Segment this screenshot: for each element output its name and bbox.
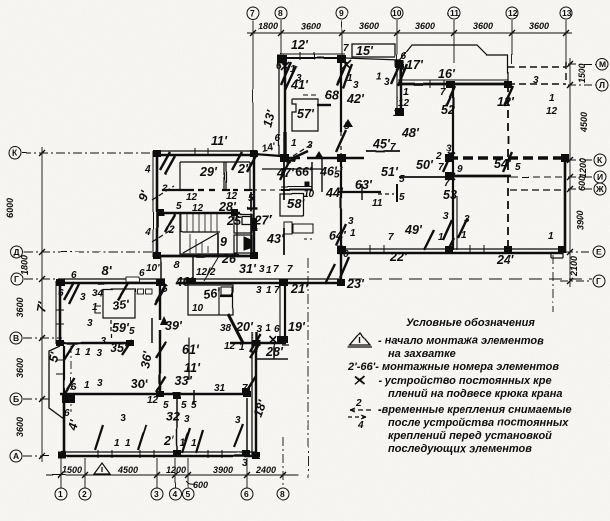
- svg-text:Л: Л: [599, 80, 605, 90]
- svg-text:Условные обозначения: Условные обозначения: [406, 317, 535, 329]
- svg-text:Г: Г: [14, 274, 19, 284]
- svg-text:6: 6: [58, 288, 64, 299]
- svg-text:39': 39': [165, 319, 183, 333]
- svg-text:1500: 1500: [577, 63, 587, 83]
- svg-text:2'-66'- монтажные номера элеме: 2'-66'- монтажные номера элементов: [347, 361, 559, 373]
- svg-text:3: 3: [80, 292, 86, 303]
- svg-text:1800: 1800: [258, 21, 278, 31]
- svg-text:6: 6: [401, 51, 407, 62]
- svg-text:11': 11': [184, 361, 201, 375]
- svg-text:12: 12: [224, 341, 236, 352]
- svg-text:3: 3: [384, 77, 390, 88]
- svg-text:9: 9: [220, 235, 227, 249]
- svg-text:7: 7: [274, 285, 280, 296]
- svg-text:7: 7: [287, 264, 293, 275]
- svg-text:6: 6: [244, 489, 249, 499]
- svg-text:5: 5: [129, 326, 135, 337]
- svg-text:1500: 1500: [62, 465, 82, 475]
- svg-text:1: 1: [438, 232, 444, 243]
- svg-text:5: 5: [344, 121, 350, 132]
- svg-text:43': 43': [266, 232, 285, 246]
- svg-text:49': 49': [404, 223, 423, 237]
- svg-text:3: 3: [154, 489, 159, 499]
- svg-text:3: 3: [184, 414, 190, 425]
- svg-text:12: 12: [546, 106, 558, 117]
- svg-text:61': 61': [182, 343, 200, 357]
- svg-text:44': 44': [325, 186, 344, 200]
- svg-text:1: 1: [92, 302, 98, 313]
- svg-text:плений на подвесе крюка крана: плений на подвесе крюка крана: [388, 388, 563, 400]
- svg-text:2: 2: [161, 183, 168, 194]
- svg-text:54': 54': [494, 157, 512, 171]
- svg-text:59': 59': [112, 321, 130, 335]
- svg-text:4500: 4500: [117, 465, 138, 475]
- svg-text:48': 48': [401, 126, 420, 140]
- svg-text:6: 6: [275, 133, 281, 144]
- svg-text:К: К: [597, 155, 603, 165]
- svg-text:8: 8: [174, 260, 180, 271]
- svg-text:12: 12: [398, 98, 410, 109]
- svg-text:3600: 3600: [15, 417, 25, 437]
- svg-text:2': 2': [237, 162, 249, 176]
- svg-text:7: 7: [440, 87, 446, 98]
- svg-text:3: 3: [256, 285, 262, 296]
- svg-text:3: 3: [307, 140, 313, 151]
- svg-text:21': 21': [290, 282, 309, 296]
- svg-text:63': 63': [355, 178, 373, 192]
- svg-text:45': 45': [372, 137, 391, 151]
- svg-text:1: 1: [84, 380, 90, 391]
- svg-text:3600: 3600: [15, 298, 25, 318]
- svg-text:1: 1: [191, 438, 197, 449]
- svg-text:3: 3: [446, 143, 452, 154]
- svg-text:22': 22': [389, 250, 408, 264]
- svg-text:3: 3: [87, 318, 93, 329]
- svg-text:9: 9: [457, 164, 463, 175]
- svg-text:5: 5: [185, 489, 190, 499]
- svg-text:1: 1: [461, 230, 467, 241]
- svg-text:10: 10: [192, 303, 204, 314]
- svg-text:17': 17': [406, 58, 424, 72]
- svg-text:24': 24': [496, 253, 515, 267]
- svg-text:12: 12: [393, 108, 405, 119]
- svg-text:12': 12': [291, 38, 309, 52]
- svg-text:15': 15': [356, 44, 374, 58]
- svg-text:3: 3: [256, 324, 262, 335]
- svg-text:12: 12: [192, 203, 204, 214]
- svg-text:7: 7: [273, 264, 279, 275]
- svg-text:1: 1: [376, 72, 382, 83]
- svg-text:5: 5: [334, 170, 340, 181]
- svg-text:26': 26': [221, 252, 240, 266]
- svg-text:5: 5: [399, 192, 405, 203]
- svg-text:8: 8: [278, 8, 283, 18]
- svg-text:68': 68': [325, 88, 343, 102]
- svg-text:1: 1: [403, 87, 409, 98]
- svg-text:50': 50': [416, 158, 434, 172]
- svg-text:5: 5: [515, 162, 521, 173]
- svg-text:К: К: [12, 148, 18, 158]
- svg-text:1: 1: [75, 347, 81, 358]
- svg-text:5: 5: [286, 156, 292, 167]
- svg-text:31: 31: [214, 383, 226, 394]
- svg-text:35': 35': [110, 341, 128, 355]
- svg-text:1: 1: [548, 231, 554, 242]
- svg-text:11': 11': [211, 134, 228, 148]
- svg-text:3: 3: [120, 413, 126, 424]
- svg-text:Г: Г: [596, 276, 601, 286]
- svg-text:11: 11: [372, 198, 383, 209]
- svg-text:- начало монтажа элементов: - начало монтажа элементов: [378, 335, 544, 347]
- svg-text:1: 1: [114, 438, 120, 449]
- svg-text:3: 3: [96, 348, 102, 359]
- svg-text:2400: 2400: [255, 465, 276, 475]
- svg-text:2: 2: [82, 489, 87, 499]
- svg-text:40': 40': [175, 275, 194, 289]
- svg-text:3900: 3900: [213, 465, 233, 475]
- svg-text:12/2: 12/2: [196, 267, 216, 278]
- svg-text:1: 1: [266, 265, 272, 276]
- svg-text:10: 10: [392, 8, 402, 18]
- svg-text:57': 57': [297, 107, 315, 121]
- svg-text:1: 1: [549, 93, 555, 104]
- svg-text:последующих элементов: последующих элементов: [388, 443, 532, 455]
- svg-text:23': 23': [346, 277, 365, 291]
- svg-text:3600: 3600: [529, 21, 549, 31]
- svg-text:7: 7: [242, 383, 248, 394]
- svg-text:4: 4: [144, 164, 151, 175]
- svg-text:3: 3: [533, 75, 539, 86]
- svg-text:29': 29': [199, 165, 218, 179]
- svg-text:20': 20': [235, 320, 254, 334]
- svg-text:600: 600: [577, 176, 587, 191]
- svg-text:3600: 3600: [473, 21, 493, 31]
- svg-text:42': 42': [346, 92, 365, 106]
- svg-text:1: 1: [239, 342, 245, 353]
- svg-text:1: 1: [265, 323, 271, 334]
- svg-text:6000: 6000: [5, 198, 15, 218]
- svg-text:52: 52: [441, 103, 455, 117]
- svg-text:3: 3: [235, 415, 241, 426]
- svg-text:7: 7: [438, 162, 444, 173]
- svg-text:10': 10': [146, 263, 160, 274]
- svg-text:3: 3: [464, 214, 470, 225]
- svg-text:4: 4: [144, 227, 151, 238]
- svg-text:1: 1: [180, 438, 186, 449]
- svg-text:12: 12: [147, 395, 159, 406]
- svg-text:1: 1: [350, 228, 356, 239]
- svg-text:5: 5: [176, 201, 182, 212]
- svg-text:3: 3: [443, 211, 449, 222]
- svg-text:6: 6: [64, 408, 70, 419]
- svg-text:66': 66': [295, 165, 313, 179]
- svg-text:19': 19': [288, 320, 306, 334]
- svg-text:1200: 1200: [166, 465, 186, 475]
- svg-text:2': 2': [163, 434, 175, 448]
- svg-text:12': 12': [497, 95, 515, 109]
- svg-text:2: 2: [355, 398, 362, 409]
- svg-text:51': 51': [381, 165, 399, 179]
- svg-text:35': 35': [111, 297, 131, 313]
- svg-text:38: 38: [220, 323, 232, 334]
- svg-text:12: 12: [508, 8, 518, 18]
- svg-text:3: 3: [296, 73, 302, 84]
- svg-text:56': 56': [202, 286, 222, 302]
- svg-text:1: 1: [85, 347, 91, 358]
- svg-text:креплений перед установкой: креплений перед установкой: [388, 430, 552, 442]
- svg-text:28': 28': [218, 200, 237, 214]
- svg-text:13: 13: [562, 8, 572, 18]
- svg-text:3: 3: [97, 378, 103, 389]
- svg-text:4500: 4500: [579, 112, 589, 133]
- svg-text:3: 3: [242, 458, 248, 469]
- svg-text:3900: 3900: [575, 210, 585, 230]
- svg-text:2: 2: [168, 225, 175, 236]
- svg-text:3: 3: [100, 336, 106, 347]
- svg-text:64': 64': [329, 229, 347, 243]
- svg-text:5: 5: [162, 284, 168, 295]
- svg-text:6: 6: [71, 270, 77, 281]
- svg-text:3600: 3600: [301, 21, 321, 31]
- svg-text:-временные крепления снимаемые: -временные крепления снимаемые: [378, 404, 572, 416]
- svg-text:27': 27': [254, 213, 273, 227]
- svg-text:4: 4: [357, 420, 364, 431]
- svg-text:1: 1: [58, 489, 63, 499]
- svg-text:5: 5: [248, 193, 254, 204]
- svg-text:В: В: [13, 333, 19, 343]
- svg-text:1: 1: [266, 285, 272, 296]
- svg-text:1: 1: [291, 138, 297, 149]
- svg-text:6: 6: [276, 61, 282, 72]
- svg-text:А: А: [13, 451, 19, 461]
- svg-text:И: И: [597, 172, 603, 182]
- svg-text:28': 28': [265, 345, 284, 359]
- svg-text:Б: Б: [13, 394, 19, 404]
- svg-text:4: 4: [172, 489, 177, 499]
- svg-text:5: 5: [181, 400, 187, 411]
- svg-text:31': 31': [239, 262, 257, 276]
- svg-text:34: 34: [92, 288, 104, 299]
- svg-text:12: 12: [186, 192, 198, 203]
- svg-text:11: 11: [450, 8, 459, 18]
- svg-text:7: 7: [343, 43, 349, 54]
- svg-text:32: 32: [166, 410, 180, 424]
- svg-text:6: 6: [343, 249, 349, 260]
- svg-text:25: 25: [226, 214, 242, 228]
- svg-text:6: 6: [139, 268, 145, 279]
- svg-text:3600: 3600: [15, 358, 25, 378]
- svg-text:Ж: Ж: [595, 184, 604, 194]
- svg-text:6: 6: [274, 324, 280, 335]
- svg-text:10: 10: [303, 189, 315, 200]
- svg-text:1800: 1800: [20, 255, 30, 275]
- svg-text:7: 7: [390, 142, 396, 153]
- svg-text:5: 5: [191, 400, 197, 411]
- svg-text:М: М: [599, 59, 606, 69]
- svg-text:1: 1: [125, 438, 131, 449]
- svg-text:600: 600: [193, 480, 208, 490]
- svg-text:16': 16': [438, 67, 456, 81]
- svg-text:2100: 2100: [569, 256, 579, 277]
- svg-text:8: 8: [280, 489, 285, 499]
- svg-text:на захватке: на захватке: [388, 348, 456, 360]
- svg-text:53: 53: [443, 188, 457, 202]
- svg-text:6: 6: [71, 382, 77, 393]
- svg-text:2: 2: [435, 151, 442, 162]
- svg-text:3: 3: [348, 216, 354, 227]
- svg-text:30': 30': [131, 377, 149, 391]
- svg-text:3: 3: [353, 80, 359, 91]
- svg-text:33': 33': [175, 374, 193, 388]
- svg-text:9: 9: [339, 8, 344, 18]
- svg-text:7: 7: [444, 178, 450, 189]
- svg-text:47': 47': [276, 166, 295, 180]
- svg-text:3600: 3600: [359, 21, 379, 31]
- svg-text:- устройство постоянных кре: - устройство постоянных кре: [378, 375, 552, 387]
- svg-text:Е: Е: [596, 247, 602, 257]
- svg-text:8': 8': [102, 264, 113, 278]
- svg-text:5: 5: [399, 174, 405, 185]
- svg-text:после устройства постоянных: после устройства постоянных: [388, 417, 569, 429]
- svg-text:7: 7: [250, 8, 255, 18]
- svg-text:3: 3: [259, 264, 265, 275]
- svg-text:1200: 1200: [578, 158, 588, 178]
- svg-text:7: 7: [388, 232, 394, 243]
- svg-text:3600: 3600: [415, 21, 435, 31]
